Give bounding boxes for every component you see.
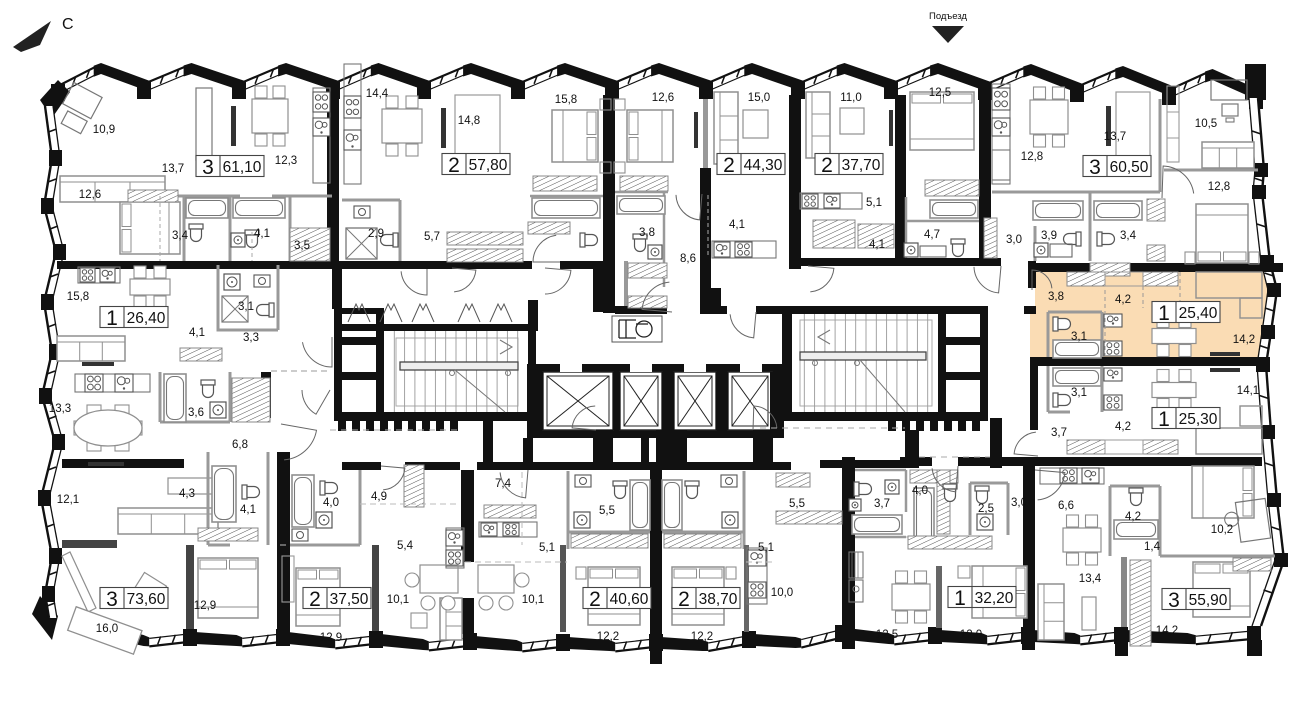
svg-text:55,90: 55,90 xyxy=(1189,592,1228,609)
svg-text:5,5: 5,5 xyxy=(599,505,615,517)
svg-text:3,4: 3,4 xyxy=(1120,230,1137,242)
svg-text:1: 1 xyxy=(954,587,966,610)
svg-text:3,3: 3,3 xyxy=(243,332,259,344)
svg-text:3,0: 3,0 xyxy=(1011,497,1027,509)
svg-text:12,2: 12,2 xyxy=(691,631,713,643)
svg-text:3,1: 3,1 xyxy=(238,301,254,313)
svg-text:4,2: 4,2 xyxy=(1125,511,1141,523)
svg-text:12,9: 12,9 xyxy=(194,600,216,612)
svg-text:3,9: 3,9 xyxy=(1041,230,1057,242)
svg-text:12,6: 12,6 xyxy=(79,189,101,201)
svg-text:12,1: 12,1 xyxy=(57,494,79,506)
svg-text:4,1: 4,1 xyxy=(869,239,885,251)
svg-text:10,5: 10,5 xyxy=(1195,118,1217,130)
svg-text:60,50: 60,50 xyxy=(1110,159,1149,176)
svg-text:2: 2 xyxy=(821,154,833,177)
svg-text:7,4: 7,4 xyxy=(495,478,512,490)
svg-text:1: 1 xyxy=(1158,408,1170,431)
svg-text:15,8: 15,8 xyxy=(555,94,577,106)
svg-text:4,2: 4,2 xyxy=(1115,421,1131,433)
svg-text:Подъезд: Подъезд xyxy=(929,11,967,22)
svg-text:14,4: 14,4 xyxy=(366,88,389,100)
svg-text:12,6: 12,6 xyxy=(652,92,674,104)
svg-text:6,6: 6,6 xyxy=(1058,500,1074,512)
svg-text:14,2: 14,2 xyxy=(1156,625,1178,637)
svg-text:12,5: 12,5 xyxy=(929,87,951,99)
svg-text:14,2: 14,2 xyxy=(1233,334,1255,346)
svg-text:12,8: 12,8 xyxy=(1208,181,1230,193)
svg-text:15,8: 15,8 xyxy=(67,291,89,303)
svg-text:15,0: 15,0 xyxy=(748,92,770,104)
svg-text:11,0: 11,0 xyxy=(840,92,862,104)
svg-text:4,1: 4,1 xyxy=(254,228,270,240)
svg-text:1: 1 xyxy=(106,307,118,330)
svg-text:3,8: 3,8 xyxy=(639,227,655,239)
svg-text:3,5: 3,5 xyxy=(294,240,310,252)
svg-text:4,0: 4,0 xyxy=(912,485,928,497)
svg-text:5,1: 5,1 xyxy=(758,542,774,554)
svg-text:3,6: 3,6 xyxy=(188,407,204,419)
svg-text:44,30: 44,30 xyxy=(744,157,783,174)
svg-text:4,2: 4,2 xyxy=(1115,294,1131,306)
svg-text:1,4: 1,4 xyxy=(1144,541,1161,553)
svg-text:5,5: 5,5 xyxy=(789,498,805,510)
svg-text:3: 3 xyxy=(1168,589,1180,612)
svg-text:12,0: 12,0 xyxy=(960,629,982,641)
svg-text:26,40: 26,40 xyxy=(127,310,166,327)
svg-text:25,40: 25,40 xyxy=(1179,305,1218,322)
svg-text:13,7: 13,7 xyxy=(1104,131,1126,143)
svg-text:10,2: 10,2 xyxy=(1211,524,1233,536)
svg-text:10,1: 10,1 xyxy=(387,594,409,606)
svg-text:3,7: 3,7 xyxy=(1051,427,1067,439)
svg-text:4,9: 4,9 xyxy=(371,491,387,503)
svg-text:5,1: 5,1 xyxy=(539,542,555,554)
svg-text:3: 3 xyxy=(106,588,118,611)
svg-text:4,1: 4,1 xyxy=(729,219,745,231)
svg-text:57,80: 57,80 xyxy=(469,157,508,174)
svg-text:4,3: 4,3 xyxy=(179,488,195,500)
svg-text:13,7: 13,7 xyxy=(162,163,184,175)
svg-text:25,30: 25,30 xyxy=(1179,411,1218,428)
svg-text:61,10: 61,10 xyxy=(223,159,262,176)
svg-text:12,9: 12,9 xyxy=(320,632,342,644)
svg-text:4,1: 4,1 xyxy=(240,504,256,516)
svg-text:12,5: 12,5 xyxy=(876,629,898,641)
svg-text:38,70: 38,70 xyxy=(699,591,738,608)
svg-text:73,60: 73,60 xyxy=(127,591,166,608)
svg-text:37,70: 37,70 xyxy=(842,157,881,174)
svg-text:10,0: 10,0 xyxy=(771,587,793,599)
svg-text:2: 2 xyxy=(448,154,460,177)
svg-text:3,1: 3,1 xyxy=(1071,387,1087,399)
svg-text:5,1: 5,1 xyxy=(866,197,882,209)
svg-text:13,3: 13,3 xyxy=(49,403,71,415)
svg-text:1: 1 xyxy=(1158,302,1170,325)
svg-text:5,7: 5,7 xyxy=(424,231,440,243)
svg-text:14,1: 14,1 xyxy=(1237,385,1259,397)
svg-text:4,0: 4,0 xyxy=(323,497,339,509)
svg-text:5,4: 5,4 xyxy=(397,540,414,552)
svg-text:3,1: 3,1 xyxy=(1071,331,1087,343)
svg-text:3,7: 3,7 xyxy=(874,498,890,510)
svg-text:12,3: 12,3 xyxy=(275,155,297,167)
svg-text:3,8: 3,8 xyxy=(1048,291,1064,303)
svg-text:12,2: 12,2 xyxy=(597,631,619,643)
svg-text:4,7: 4,7 xyxy=(924,229,940,241)
svg-text:2: 2 xyxy=(589,588,601,611)
svg-text:37,50: 37,50 xyxy=(330,591,369,608)
svg-text:2,5: 2,5 xyxy=(978,503,994,515)
svg-text:32,20: 32,20 xyxy=(975,590,1014,607)
svg-text:6,8: 6,8 xyxy=(232,439,248,451)
svg-text:12,8: 12,8 xyxy=(1021,151,1043,163)
svg-text:10,1: 10,1 xyxy=(522,594,544,606)
svg-text:3: 3 xyxy=(1089,156,1101,179)
svg-text:2: 2 xyxy=(309,588,321,611)
svg-text:3,4: 3,4 xyxy=(172,230,189,242)
svg-text:2: 2 xyxy=(723,154,735,177)
svg-text:2,9: 2,9 xyxy=(368,228,384,240)
svg-text:14,8: 14,8 xyxy=(458,115,480,127)
svg-text:13,4: 13,4 xyxy=(1079,573,1102,585)
svg-text:3: 3 xyxy=(202,156,214,179)
svg-text:40,60: 40,60 xyxy=(610,591,649,608)
svg-text:4,1: 4,1 xyxy=(189,327,205,339)
svg-text:С: С xyxy=(62,16,74,33)
svg-text:3,0: 3,0 xyxy=(1006,234,1022,246)
svg-text:8,6: 8,6 xyxy=(680,253,696,265)
svg-text:10,9: 10,9 xyxy=(93,124,115,136)
svg-text:2: 2 xyxy=(678,588,690,611)
svg-text:16,0: 16,0 xyxy=(96,623,118,635)
